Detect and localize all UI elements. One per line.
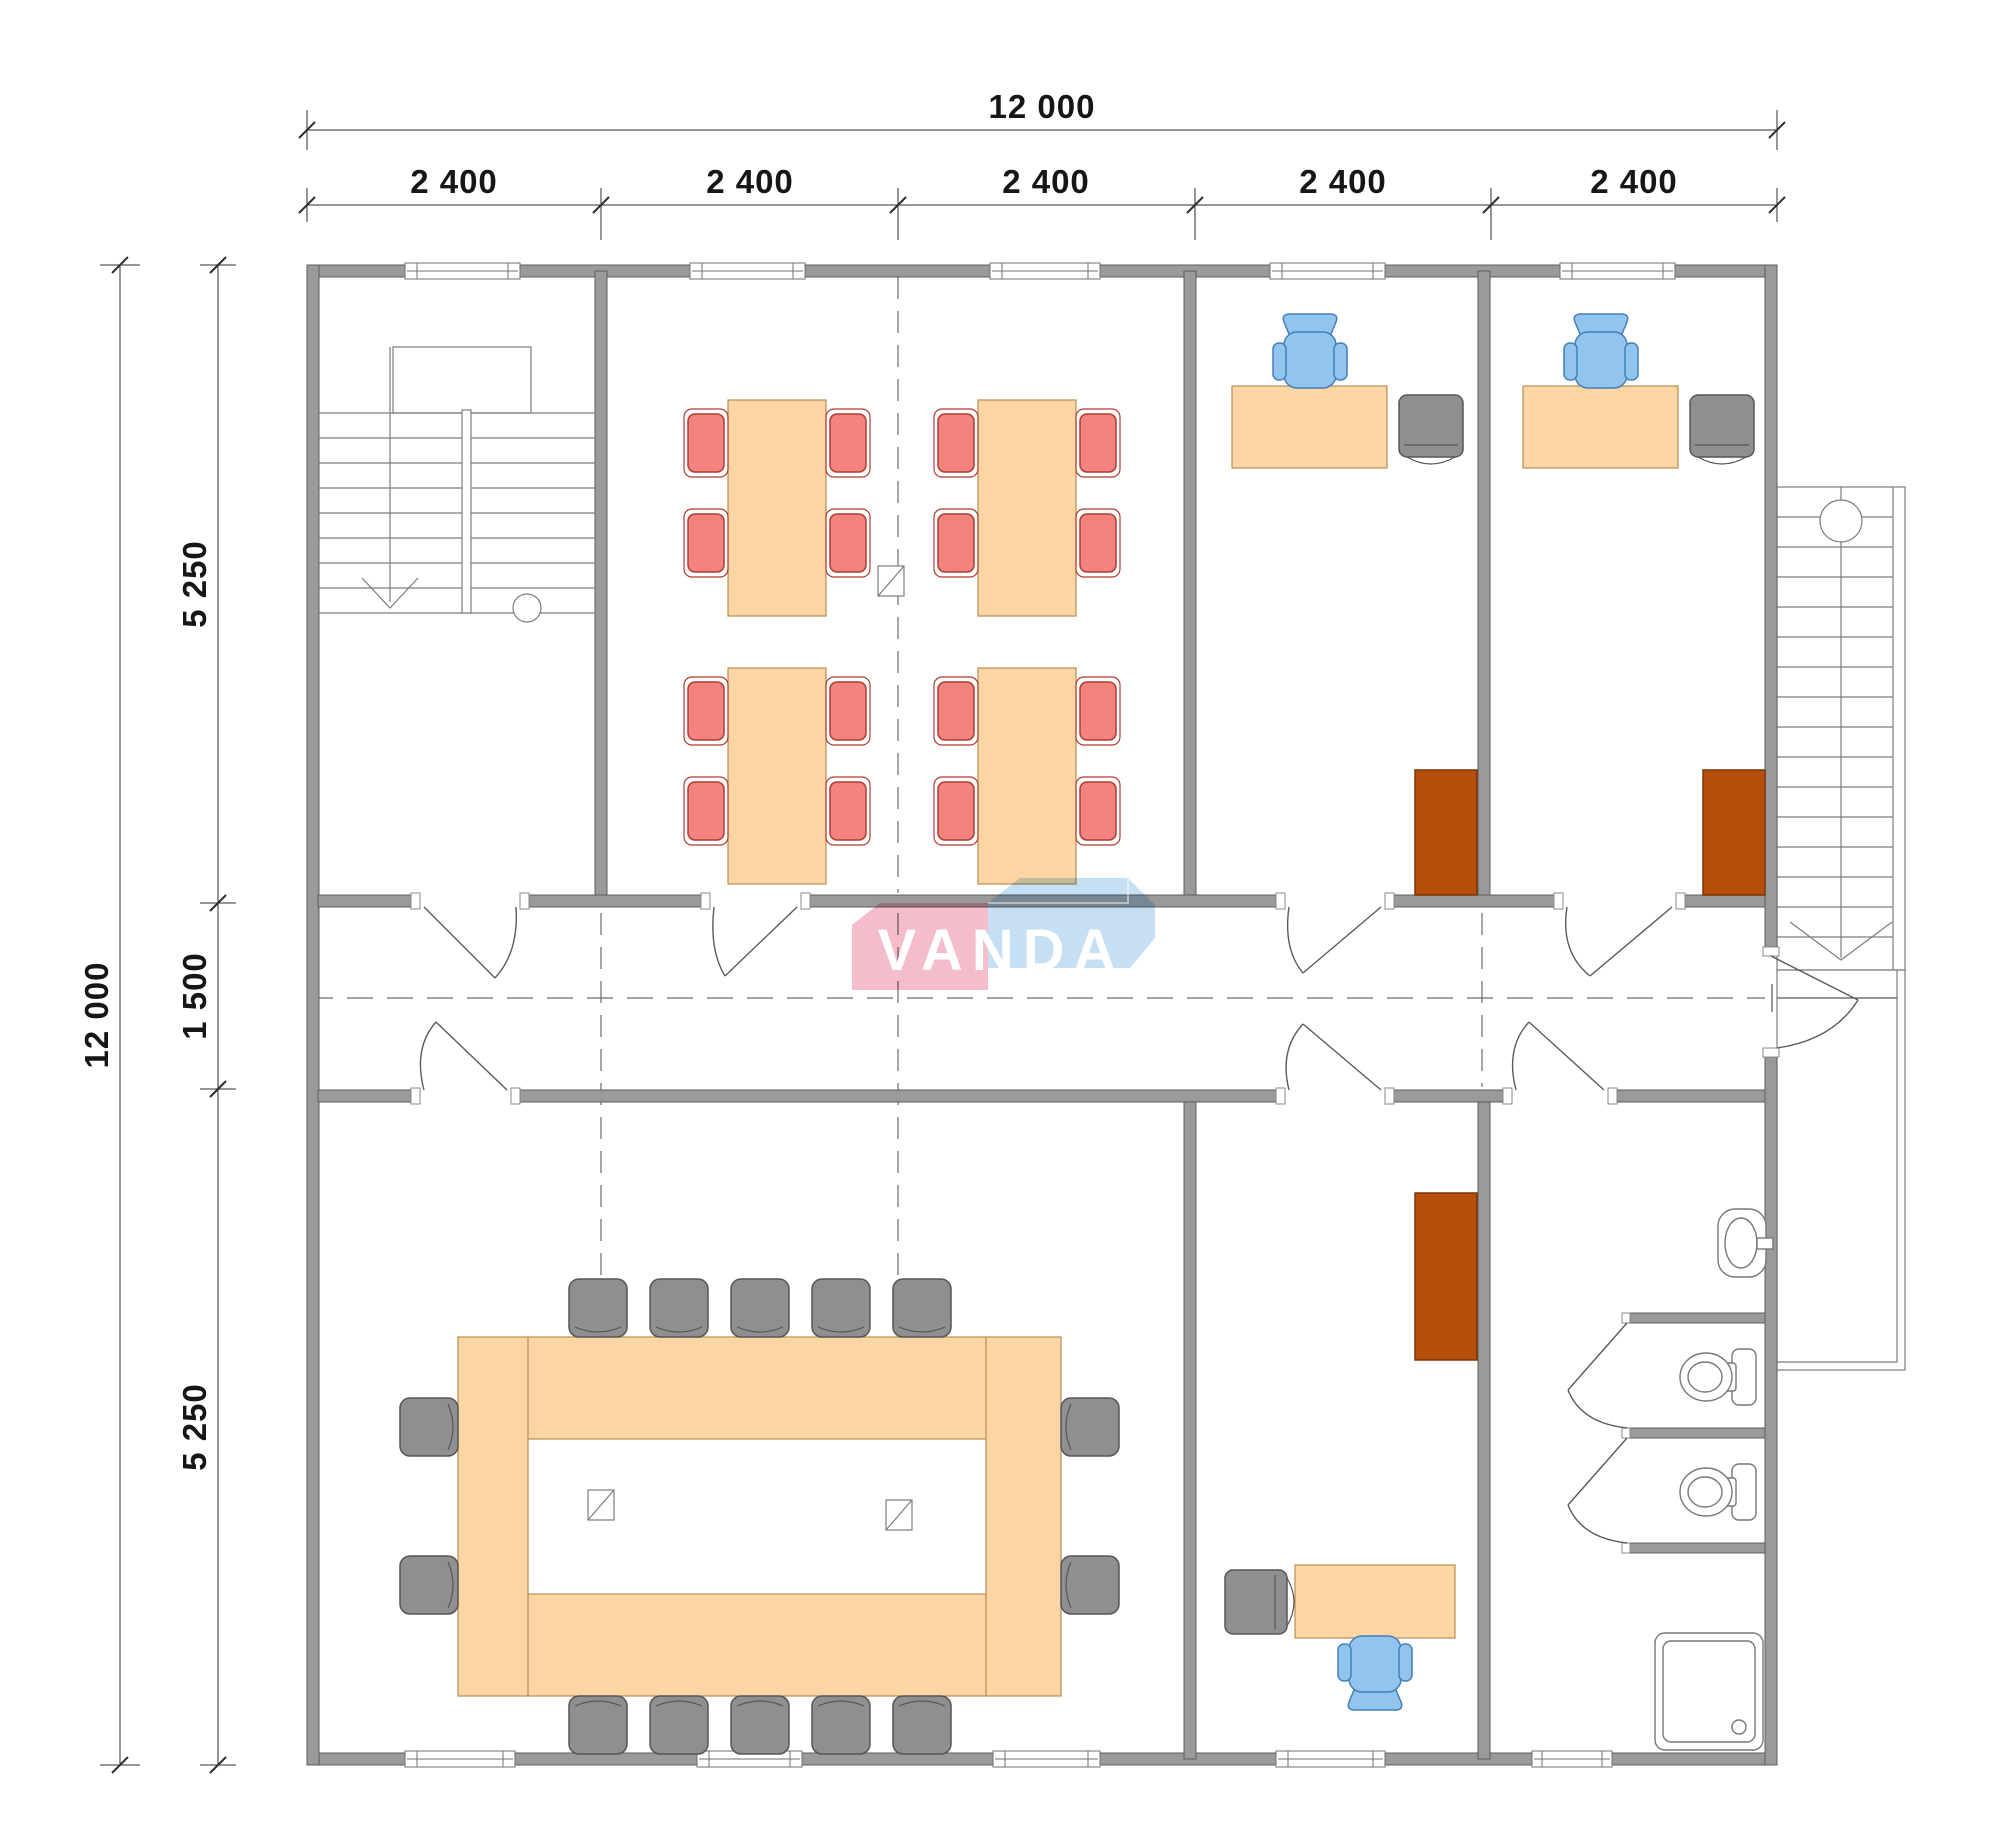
red-chair-icon	[1076, 777, 1120, 845]
office-chair-icon	[1273, 314, 1347, 388]
meeting-chair-icon	[650, 1279, 708, 1337]
door-icon	[1286, 1024, 1381, 1090]
office-chair-icon	[1338, 1636, 1412, 1710]
room-stairwell	[319, 347, 595, 622]
dim-left-seg-3: 5 250	[176, 1383, 213, 1471]
red-chair-icon	[684, 777, 728, 845]
toilet-icon	[1680, 1464, 1756, 1520]
wall-meeting-office3	[1184, 1096, 1196, 1759]
door-icon	[1288, 907, 1381, 973]
red-chair-icon	[826, 677, 870, 745]
meeting-chair-icon	[731, 1696, 789, 1754]
room-office-1	[1232, 314, 1477, 895]
cabinet	[1415, 770, 1477, 895]
meeting-chair-icon	[569, 1279, 627, 1337]
sink-icon	[1718, 1209, 1773, 1277]
toilet-icon	[1680, 1349, 1756, 1405]
room-bathroom	[1655, 1209, 1773, 1750]
red-chair-icon	[934, 677, 978, 745]
red-chair-icon	[826, 509, 870, 577]
column-marker-icon	[878, 566, 904, 596]
meeting-chair-icon	[893, 1279, 951, 1337]
guest-chair-icon	[1399, 395, 1463, 464]
meeting-chair-icon	[812, 1279, 870, 1337]
stair-divider	[462, 410, 471, 613]
office-chair-icon	[1564, 314, 1638, 388]
window-icon	[405, 263, 520, 279]
dim-left-seg-2: 1 500	[176, 952, 213, 1040]
cabinet	[1415, 1193, 1477, 1360]
room-office-2	[1523, 314, 1765, 895]
exterior-staircase	[1777, 487, 1905, 1370]
dim-top-total: 12 000	[989, 88, 1096, 125]
wall-classroom-office1	[1184, 271, 1196, 901]
classroom-table	[728, 668, 826, 884]
dim-top-seg-1: 2 400	[410, 163, 498, 200]
wall-right-lower	[1765, 1048, 1777, 1765]
stair-landing	[1777, 970, 1905, 1370]
red-chair-icon	[684, 509, 728, 577]
wall-office3-bathroom	[1478, 1096, 1490, 1759]
dim-left-seg-1: 5 250	[176, 540, 213, 628]
meeting-chair-icon	[731, 1279, 789, 1337]
stair-upper-landing	[393, 347, 531, 413]
red-chair-icon	[684, 677, 728, 745]
meeting-chair-icon	[893, 1696, 951, 1754]
floor-plan-page: 12 000 2 400 2 400 2 400 2 400 2 400 12 …	[0, 0, 2000, 1848]
red-chair-icon	[1076, 509, 1120, 577]
desk	[1295, 1565, 1455, 1638]
dim-top-seg-5: 2 400	[1590, 163, 1678, 200]
red-chair-icon	[1076, 409, 1120, 477]
window-icon	[1276, 1751, 1385, 1767]
floor-plan-drawing: 12 000 2 400 2 400 2 400 2 400 2 400 12 …	[0, 0, 2000, 1848]
door-icon	[420, 1022, 507, 1090]
meeting-chair-icon	[1061, 1398, 1119, 1456]
stair-start-circle	[1820, 500, 1862, 542]
classroom-table	[978, 400, 1076, 616]
window-icon	[1532, 1751, 1612, 1767]
column-marker-icon	[588, 1490, 614, 1520]
window-icon	[1270, 263, 1385, 279]
door-icon	[1568, 1438, 1627, 1543]
room-office-3	[1225, 1193, 1477, 1710]
meeting-chair-icon	[569, 1696, 627, 1754]
wall-left	[307, 265, 319, 1765]
dim-top-seg-2: 2 400	[706, 163, 794, 200]
door-icon	[1568, 1323, 1627, 1428]
red-chair-icon	[934, 777, 978, 845]
door-icon	[713, 907, 797, 976]
window-icon	[1560, 263, 1675, 279]
red-chair-icon	[826, 777, 870, 845]
dimension-left: 12 000 5 250 1 500 5 250	[78, 257, 236, 1773]
stair-start-circle	[513, 594, 541, 622]
dim-top-seg-3: 2 400	[1002, 163, 1090, 200]
window-icon	[405, 1751, 515, 1767]
room-meeting	[400, 1279, 1119, 1754]
door-icon	[1566, 907, 1672, 976]
meeting-chair-icon	[400, 1556, 458, 1614]
window-icon	[690, 263, 805, 279]
meeting-chair-icon	[812, 1696, 870, 1754]
door-icon	[424, 907, 516, 978]
red-chair-icon	[684, 409, 728, 477]
dimension-top: 12 000 2 400 2 400 2 400 2 400 2 400	[299, 88, 1785, 240]
meeting-chair-icon	[400, 1398, 458, 1456]
red-chair-icon	[1076, 677, 1120, 745]
red-chair-icon	[934, 509, 978, 577]
window-icon	[990, 263, 1100, 279]
meeting-chair-icon	[650, 1696, 708, 1754]
red-chair-icon	[934, 409, 978, 477]
shower-icon	[1655, 1633, 1763, 1750]
classroom-table	[728, 400, 826, 616]
meeting-chair-icon	[1061, 1556, 1119, 1614]
column-marker-icon	[886, 1500, 912, 1530]
guest-chair-icon	[1690, 395, 1754, 464]
wall-office1-office2	[1478, 271, 1490, 901]
classroom-table	[978, 668, 1076, 884]
desk	[1232, 386, 1387, 468]
wall-stairwell-classroom	[595, 271, 607, 901]
dim-left-total: 12 000	[78, 962, 115, 1069]
wall-right-upper	[1765, 265, 1777, 956]
guest-chair-icon	[1225, 1570, 1294, 1634]
window-icon	[993, 1751, 1100, 1767]
red-chair-icon	[826, 409, 870, 477]
door-icon	[1513, 1022, 1604, 1090]
dim-top-seg-4: 2 400	[1299, 163, 1387, 200]
desk	[1523, 386, 1678, 468]
cabinet	[1703, 770, 1765, 895]
room-classroom	[684, 400, 1120, 884]
logo-text: VANDA	[878, 918, 1125, 983]
